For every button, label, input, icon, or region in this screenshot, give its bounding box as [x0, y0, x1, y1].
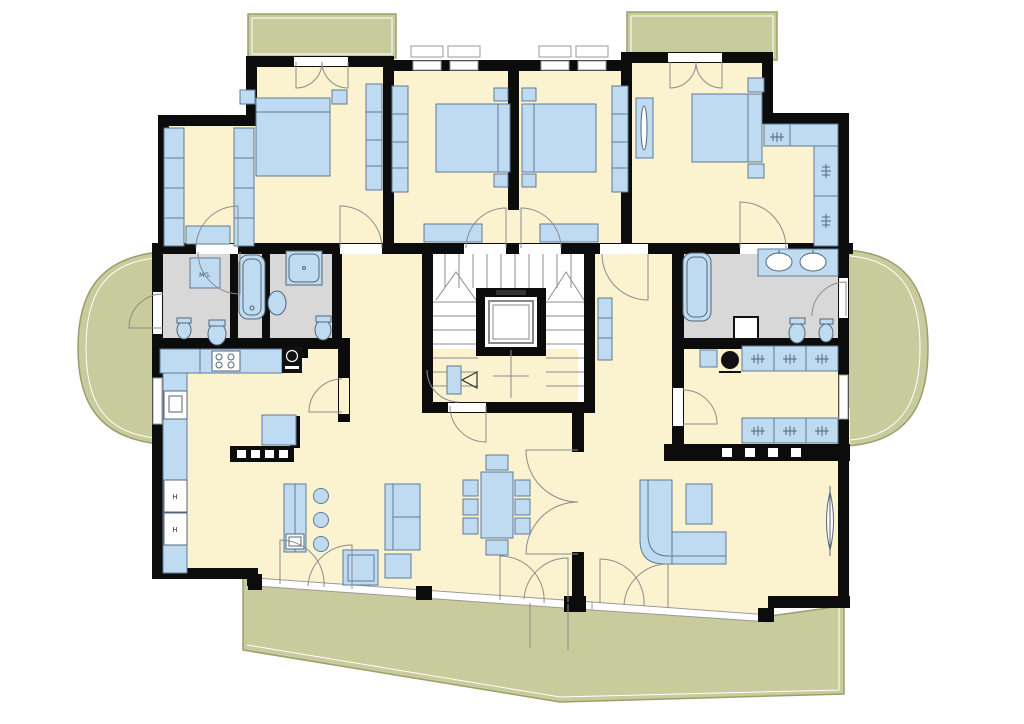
sink — [268, 291, 286, 315]
wall — [248, 574, 262, 590]
floor-plan: MG.HH — [0, 0, 1024, 724]
window — [578, 61, 606, 70]
door-opening — [294, 57, 348, 66]
window — [541, 61, 569, 70]
window-sill — [539, 46, 571, 57]
fridge-label: H — [172, 526, 177, 534]
nightstand — [748, 78, 764, 92]
nightstand — [494, 88, 508, 101]
column-gap — [768, 448, 778, 457]
balcony-top-left — [248, 14, 396, 58]
column-gap — [279, 450, 288, 458]
door-opening — [673, 388, 683, 426]
window-sill — [411, 46, 443, 57]
column-gap — [791, 448, 801, 457]
bar-stool — [314, 537, 329, 552]
bar-stool — [314, 513, 329, 528]
door-opening — [600, 244, 648, 254]
wall — [422, 402, 595, 413]
oven-handle — [285, 366, 299, 369]
wall — [762, 113, 849, 124]
kitchen-counter — [262, 415, 296, 445]
chair — [486, 455, 508, 470]
nightstand — [240, 90, 255, 104]
nightstand — [494, 174, 508, 187]
sideboard — [540, 224, 598, 242]
wall — [838, 113, 849, 254]
shower — [286, 251, 322, 285]
door-opening — [448, 403, 486, 412]
sink — [766, 253, 792, 271]
floor-hall-left — [342, 248, 430, 349]
balcony-left — [78, 252, 160, 444]
bed — [256, 98, 330, 176]
window — [153, 378, 162, 424]
wall — [808, 444, 850, 461]
floor-living-left — [158, 349, 578, 579]
nightstand — [748, 164, 764, 178]
window-sill — [448, 46, 480, 57]
toilet-tank — [316, 316, 331, 322]
ottoman — [385, 554, 411, 578]
chair — [486, 540, 508, 555]
side-table — [686, 484, 712, 524]
wardrobe — [234, 128, 254, 246]
wardrobe — [366, 84, 382, 190]
fridge-label: H — [172, 493, 177, 501]
wall — [838, 444, 849, 604]
bar-stool — [314, 489, 329, 504]
window-sill — [576, 46, 608, 57]
wall — [758, 608, 774, 622]
shower-niche — [734, 317, 758, 339]
wall — [564, 596, 586, 612]
wall — [664, 444, 712, 461]
boiler — [721, 351, 739, 369]
cooktop — [212, 351, 240, 371]
chair — [515, 480, 530, 496]
wall — [416, 586, 432, 600]
radiator — [598, 298, 612, 360]
wardrobe — [764, 124, 838, 146]
bidet-tank — [820, 319, 833, 324]
nightstand — [522, 88, 536, 101]
door-opening — [839, 278, 848, 318]
toilet-tank — [209, 320, 225, 326]
wall — [584, 243, 595, 413]
wall — [230, 248, 238, 349]
chair — [515, 499, 530, 515]
door-opening — [196, 244, 238, 254]
window — [450, 61, 478, 70]
toilet-tank — [790, 318, 805, 324]
kitchen-sink — [164, 391, 187, 419]
wardrobe — [612, 86, 628, 192]
sink — [800, 253, 826, 271]
wall — [422, 243, 433, 413]
bidet-tank — [177, 318, 191, 323]
toilet — [315, 320, 331, 340]
chair — [463, 480, 478, 496]
door-opening — [340, 244, 382, 254]
wall — [672, 243, 684, 349]
wall — [572, 408, 584, 452]
sideboard — [186, 226, 230, 244]
wall — [152, 338, 348, 349]
wall — [768, 596, 850, 608]
balcony-right — [846, 250, 928, 446]
bed — [522, 104, 596, 172]
chair — [463, 518, 478, 534]
nightstand — [332, 90, 347, 104]
wall — [158, 115, 257, 126]
column-gap — [251, 450, 260, 458]
column-gap — [265, 450, 274, 458]
wardrobe — [164, 128, 184, 246]
door-opening — [519, 244, 561, 254]
sideboard — [424, 224, 482, 242]
elevator-door — [496, 290, 526, 295]
column-gap — [237, 450, 246, 458]
floorplan-svg: MG.HH — [0, 0, 1024, 724]
door-opening — [339, 378, 349, 414]
chair — [463, 499, 478, 515]
bidet — [177, 321, 191, 339]
bed — [436, 104, 510, 172]
bed — [692, 94, 762, 162]
cabinet — [700, 350, 717, 367]
toilet — [789, 323, 805, 343]
nightstand — [522, 174, 536, 187]
chair — [515, 518, 530, 534]
window — [839, 375, 848, 419]
column-gap — [722, 448, 732, 457]
mirror — [641, 106, 647, 150]
wardrobe — [392, 86, 408, 192]
entry-mat — [447, 366, 461, 394]
door-opening — [464, 244, 506, 254]
column-gap — [745, 448, 755, 457]
bidet — [819, 324, 833, 342]
window — [413, 61, 441, 70]
dining-table — [481, 472, 513, 538]
door-opening — [668, 53, 722, 62]
wall — [332, 248, 342, 349]
